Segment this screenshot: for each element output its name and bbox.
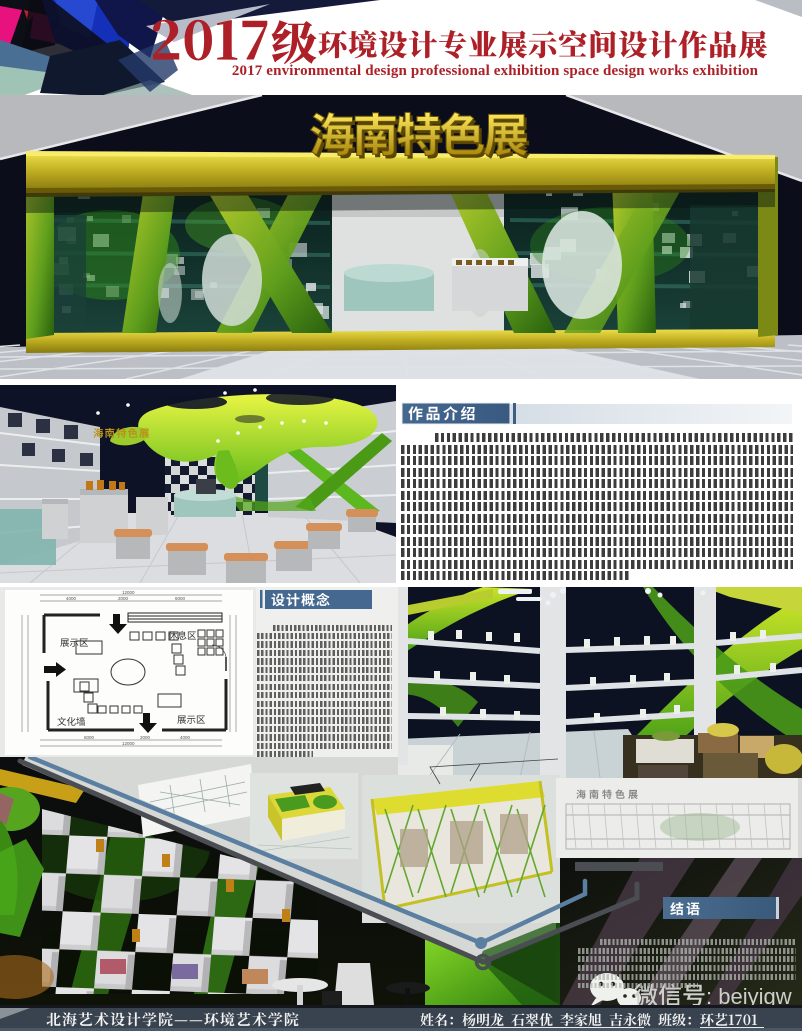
- svg-text:12000: 12000: [122, 741, 135, 746]
- svg-text:6000: 6000: [175, 596, 186, 601]
- svg-text:4000: 4000: [66, 596, 77, 601]
- svg-text:2000: 2000: [118, 596, 129, 601]
- svg-text:12000: 12000: [122, 590, 135, 595]
- svg-text:: beiyigw: : beiyigw: [706, 984, 792, 1005]
- svg-text:4000: 4000: [180, 735, 191, 740]
- svg-text:6000: 6000: [84, 735, 95, 740]
- svg-text:2000: 2000: [140, 735, 151, 740]
